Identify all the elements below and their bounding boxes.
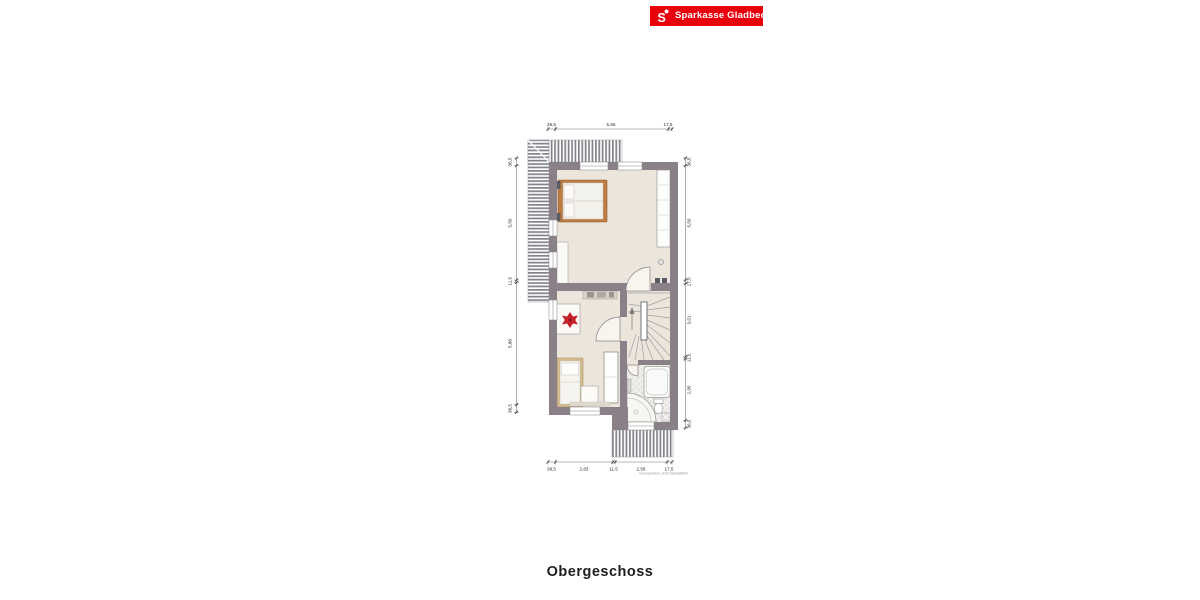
svg-text:36,5: 36,5 bbox=[547, 467, 556, 472]
chimney-flue bbox=[662, 278, 667, 283]
svg-text:36,5: 36,5 bbox=[547, 122, 556, 127]
svg-text:11,5: 11,5 bbox=[609, 467, 618, 472]
window bbox=[549, 300, 557, 320]
svg-text:36,5: 36,5 bbox=[508, 157, 513, 166]
floor-plan: 36,5 5,56 17,5 36,5 2,83 11,5 2,56 17,5 … bbox=[0, 0, 1200, 600]
dimension-right: 36,5 5,50 17,5 3,51 11,5 2,95 36,5 bbox=[683, 157, 692, 430]
double-bed bbox=[557, 180, 607, 222]
svg-text:5,88: 5,88 bbox=[508, 339, 513, 348]
dresser-childroom bbox=[581, 386, 598, 404]
svg-text:5,56: 5,56 bbox=[607, 122, 616, 127]
plan-footnote: Exemplarisch, nicht maßstäblich bbox=[639, 472, 688, 476]
svg-text:3,51: 3,51 bbox=[687, 315, 692, 324]
floor-outlet bbox=[658, 259, 663, 264]
svg-text:2,83: 2,83 bbox=[580, 467, 589, 472]
window bbox=[618, 162, 642, 170]
wardrobe-bedroom bbox=[657, 170, 670, 247]
svg-text:11,5: 11,5 bbox=[508, 276, 513, 285]
dimension-bottom: 36,5 2,83 11,5 2,56 17,5 Exemplarisch, n… bbox=[547, 460, 689, 476]
svg-text:36,5: 36,5 bbox=[687, 157, 692, 166]
desk-with-plant bbox=[556, 304, 580, 334]
svg-text:36,5: 36,5 bbox=[687, 419, 692, 428]
window bbox=[549, 220, 557, 236]
window bbox=[549, 252, 557, 268]
wardrobe-childroom bbox=[604, 352, 618, 403]
single-bed bbox=[557, 358, 583, 407]
page: S Sparkasse Gladbeck bbox=[0, 0, 1200, 600]
radiator bbox=[628, 379, 632, 392]
svg-text:5,50: 5,50 bbox=[687, 218, 692, 227]
chimney-flue bbox=[655, 278, 660, 283]
sink bbox=[662, 413, 670, 421]
dimension-left: 36,5 5,50 11,5 5,88 36,5 bbox=[508, 157, 520, 414]
svg-text:2,95: 2,95 bbox=[687, 385, 692, 394]
window bbox=[570, 407, 600, 415]
bathtub bbox=[644, 367, 670, 398]
stair-rail bbox=[641, 302, 647, 340]
sideboard bbox=[583, 291, 617, 299]
page-title: Obergeschoss bbox=[0, 564, 1200, 580]
dimension-top: 36,5 5,56 17,5 bbox=[547, 122, 674, 132]
svg-text:11,5: 11,5 bbox=[687, 353, 692, 362]
svg-text:36,5: 36,5 bbox=[508, 404, 513, 413]
heater-strip bbox=[570, 402, 610, 406]
toilet bbox=[654, 399, 663, 414]
svg-text:17,5: 17,5 bbox=[687, 277, 692, 286]
dresser-bedroom bbox=[557, 242, 568, 284]
window bbox=[580, 162, 608, 170]
svg-text:5,50: 5,50 bbox=[508, 218, 513, 227]
window bbox=[628, 422, 654, 430]
svg-text:17,5: 17,5 bbox=[664, 122, 673, 127]
